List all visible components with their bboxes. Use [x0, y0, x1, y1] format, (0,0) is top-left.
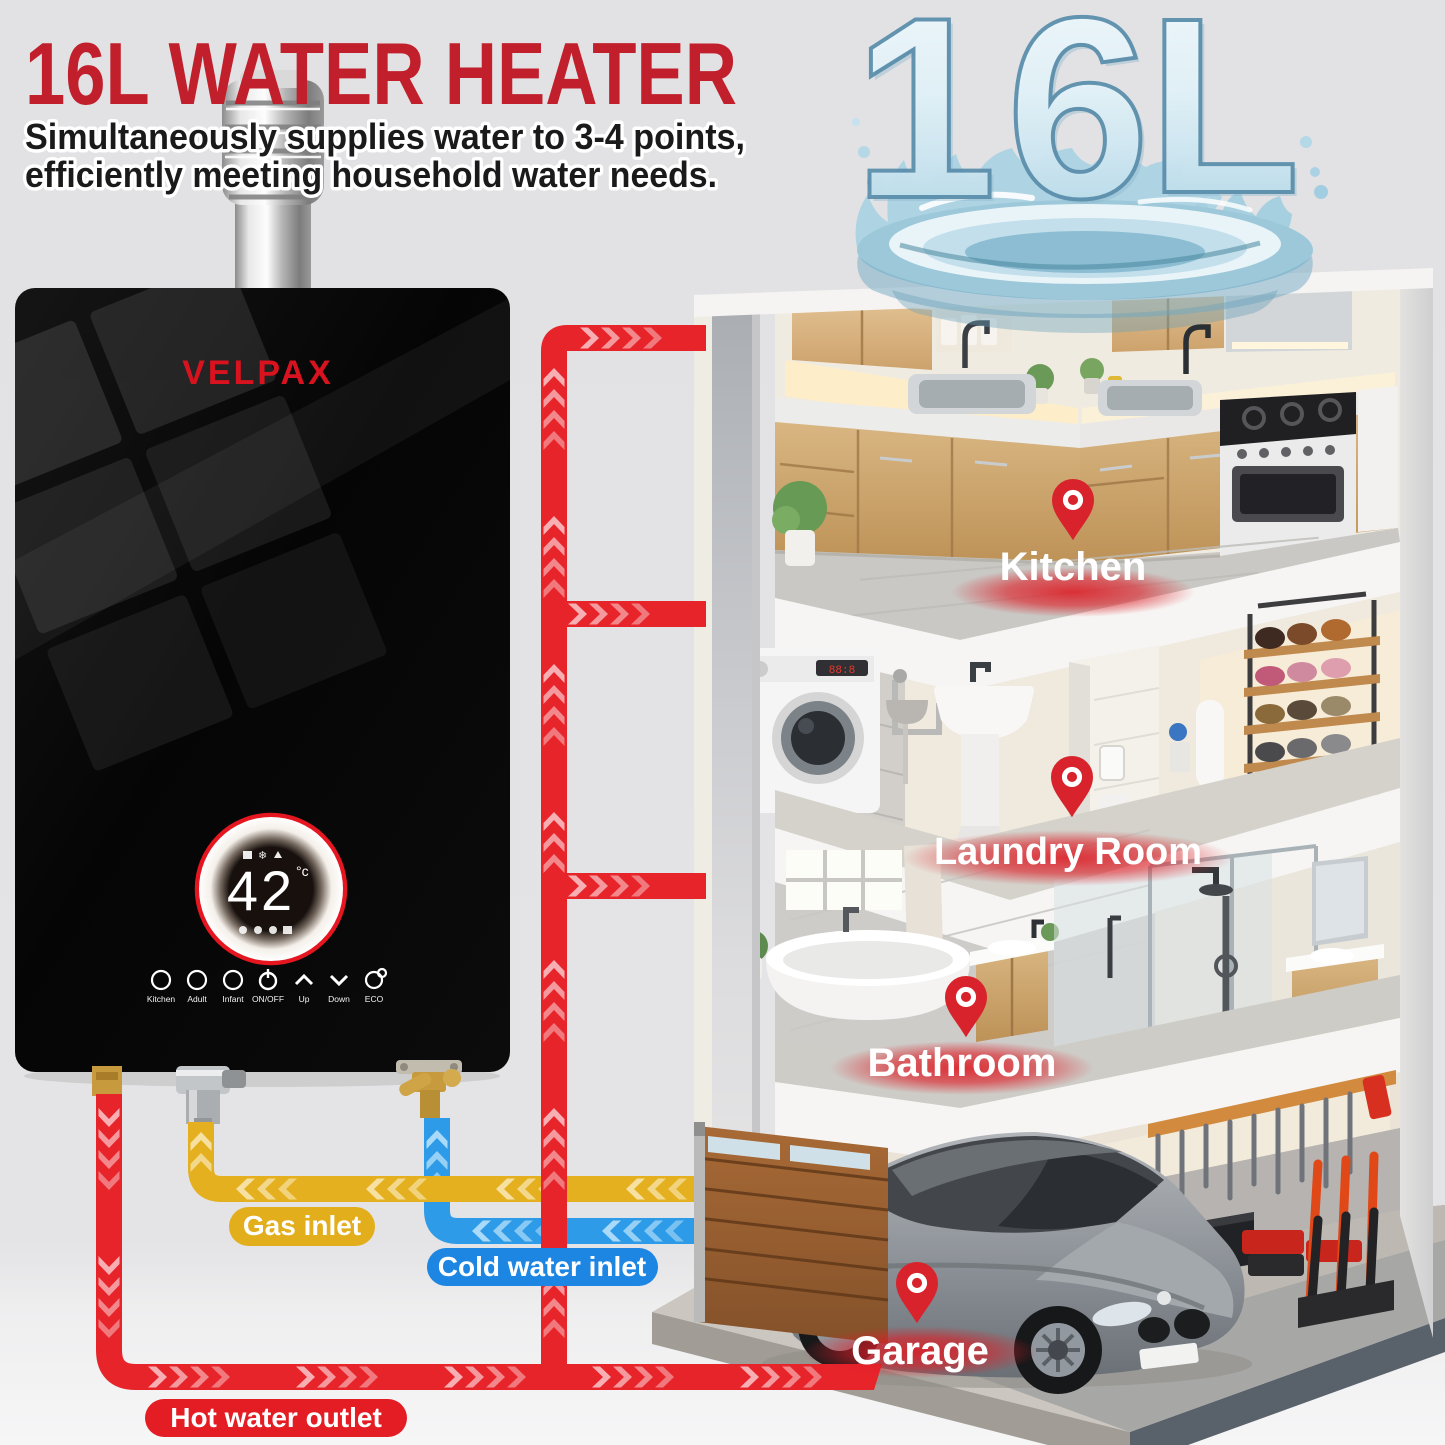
svg-text:VELPAX: VELPAX [182, 354, 334, 392]
svg-text:Down: Down [328, 994, 350, 1004]
svg-text:Cold water inlet: Cold water inlet [438, 1251, 646, 1282]
svg-text:❄: ❄ [258, 850, 267, 862]
svg-text:Garage: Garage [851, 1329, 989, 1373]
svg-text:1: 1 [853, 0, 997, 252]
svg-text:88:8: 88:8 [829, 665, 855, 677]
svg-text:Gas inlet: Gas inlet [243, 1210, 361, 1241]
svg-text:16L WATER HEATER: 16L WATER HEATER [25, 24, 737, 123]
svg-text:efficiently meeting household: efficiently meeting household water need… [25, 154, 717, 195]
svg-text:Hot water outlet: Hot water outlet [170, 1402, 382, 1433]
svg-text:Laundry Room: Laundry Room [934, 831, 1202, 873]
svg-text:Up: Up [299, 994, 310, 1004]
svg-text:Simultaneously supplies water: Simultaneously supplies water to 3-4 poi… [25, 116, 745, 157]
svg-text:6: 6 [1006, 0, 1150, 252]
svg-text:°c: °c [296, 863, 309, 879]
svg-text:Kitchen: Kitchen [147, 994, 176, 1004]
svg-text:ECO: ECO [365, 994, 384, 1004]
svg-text:Adult: Adult [187, 994, 207, 1004]
svg-text:L: L [1148, 0, 1301, 245]
svg-text:ON/OFF: ON/OFF [252, 994, 284, 1004]
svg-text:Infant: Infant [222, 994, 244, 1004]
svg-text:42: 42 [227, 859, 295, 922]
svg-text:Kitchen: Kitchen [1000, 545, 1147, 589]
svg-text:Bathroom: Bathroom [868, 1041, 1057, 1085]
